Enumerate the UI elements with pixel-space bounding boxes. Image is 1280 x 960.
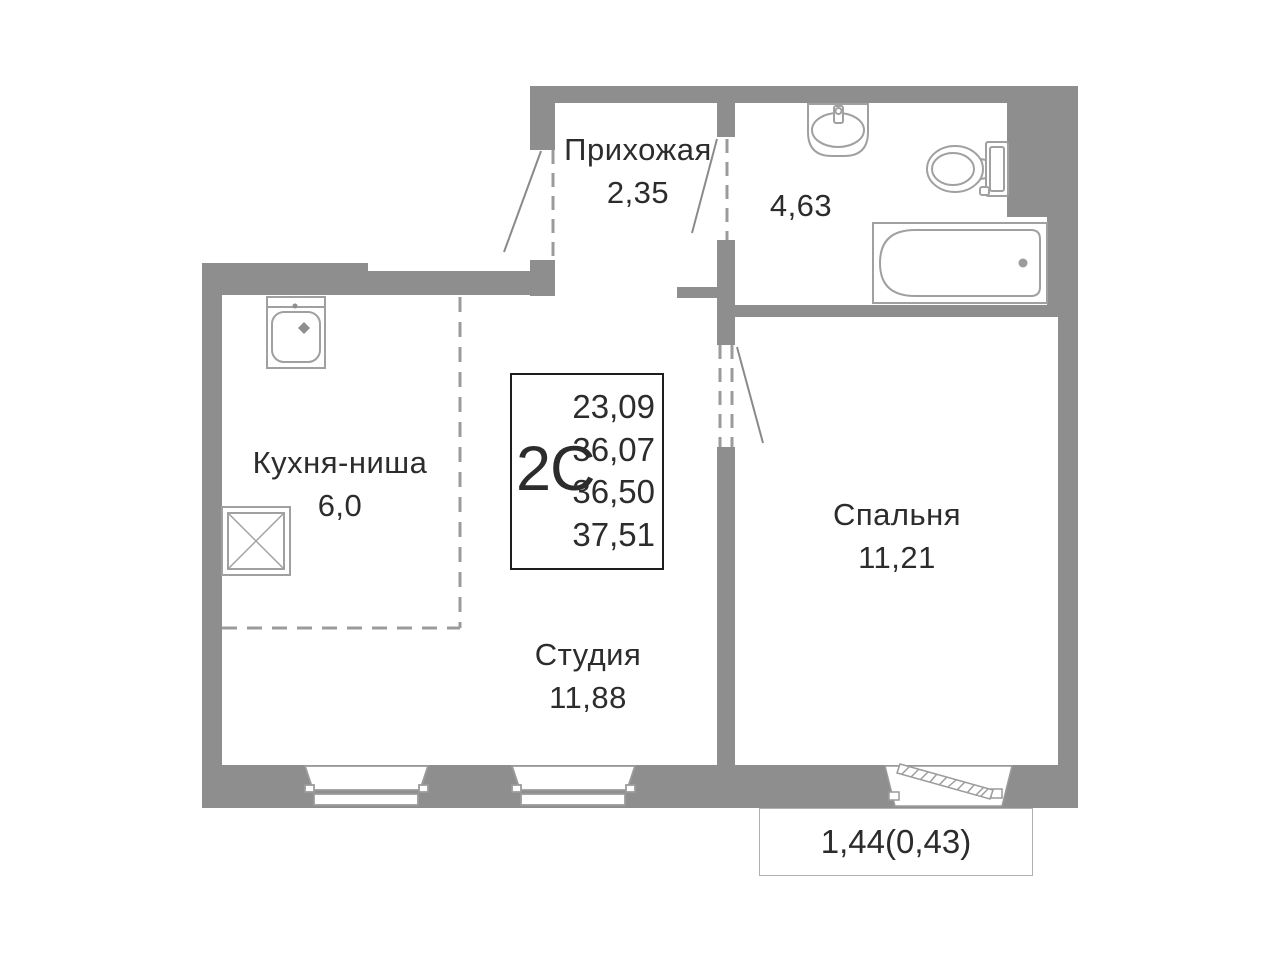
- window-studio-right: [512, 766, 635, 805]
- area-value-1: 23,09: [572, 386, 655, 429]
- studio-name: Студия: [488, 633, 688, 676]
- area-value-3: 36,50: [572, 471, 655, 514]
- kitchen-label: Кухня-ниша 6,0: [220, 441, 460, 527]
- studio-label: Студия 11,88: [488, 633, 688, 719]
- bedroom-name: Спальня: [787, 493, 1007, 536]
- bedroom-door: [720, 345, 763, 447]
- bathtub-icon: [873, 223, 1047, 303]
- apartment-info-box: 2С 23,09 36,07 36,50 37,51: [510, 373, 664, 570]
- balcony-door: [885, 764, 1012, 806]
- hallway-name: Прихожая: [528, 128, 748, 171]
- bathroom-label: 4,63: [741, 184, 861, 227]
- kitchen-sink-icon: [267, 297, 325, 368]
- bedroom-label: Спальня 11,21: [787, 493, 1007, 579]
- bedroom-area: 11,21: [787, 536, 1007, 579]
- bath-sink-icon: [808, 104, 868, 156]
- balcony: 1,44(0,43): [759, 808, 1033, 876]
- toilet-icon: [927, 142, 1008, 196]
- studio-area: 11,88: [488, 676, 688, 719]
- hallway-area: 2,35: [528, 171, 748, 214]
- hallway-label: Прихожая 2,35: [528, 128, 748, 214]
- kitchen-area: 6,0: [220, 484, 460, 527]
- floor-plan: Прихожая 2,35 4,63 Кухня-ниша 6,0 Спальн…: [0, 0, 1280, 960]
- area-value-2: 36,07: [572, 429, 655, 472]
- window-studio-left: [305, 766, 428, 805]
- bathroom-area: 4,63: [741, 184, 861, 227]
- kitchen-name: Кухня-ниша: [220, 441, 460, 484]
- apartment-areas: 23,09 36,07 36,50 37,51: [572, 386, 655, 556]
- balcony-area: 1,44(0,43): [821, 823, 971, 861]
- area-value-4: 37,51: [572, 514, 655, 557]
